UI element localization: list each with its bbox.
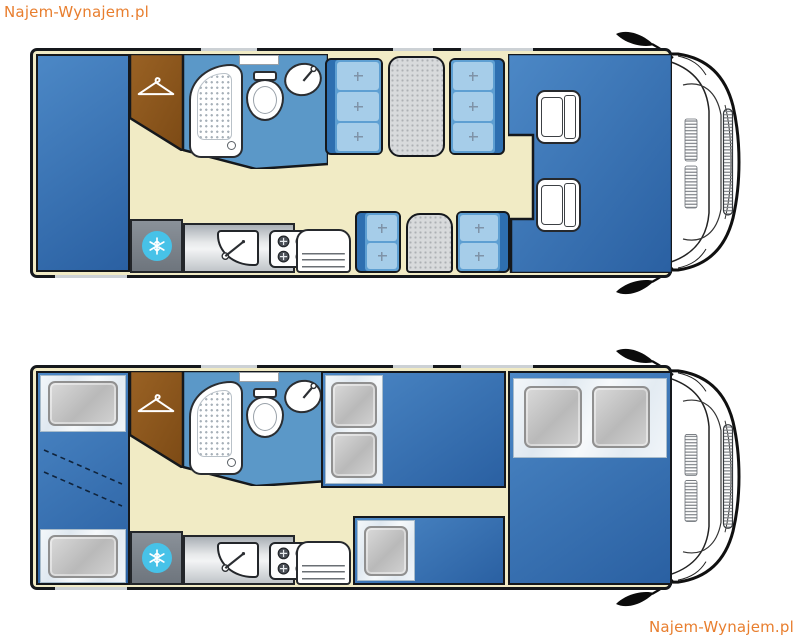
cab-nose — [666, 366, 744, 587]
cab-seat-passenger — [536, 90, 581, 144]
shower — [189, 64, 243, 158]
side-dinette-table — [406, 213, 453, 273]
roof-window-segment — [55, 587, 127, 590]
bumper-grille-icon — [724, 425, 733, 529]
wardrobe — [130, 371, 183, 468]
page: Najem-Wynajem.pl Najem-Wynajem.pl — [0, 0, 800, 644]
shower-tray — [197, 73, 232, 140]
rear-double-bed — [36, 54, 130, 272]
grille-vent-icon — [685, 166, 697, 208]
rear-bunk-beds — [36, 371, 130, 585]
bunk-ladder-marks — [40, 434, 126, 529]
cab-nose-icon — [666, 366, 744, 587]
bunk-bed-top — [40, 375, 126, 432]
cab-seat-driver — [536, 178, 581, 232]
pillow — [331, 382, 377, 428]
kitchen-sink — [217, 230, 259, 266]
roof-window-segment — [55, 275, 127, 278]
grille-vent-icon — [685, 119, 697, 161]
bunk-bed-bottom — [40, 529, 126, 583]
bed-sheet — [325, 375, 383, 484]
pillow — [524, 386, 582, 448]
kitchen-counter — [183, 535, 295, 585]
roof-window-segment — [461, 365, 533, 368]
bunk-pillow — [48, 381, 118, 426]
front-lounge-block — [508, 54, 672, 273]
hanger-icon — [136, 70, 176, 100]
pillow — [592, 386, 650, 448]
toilet-bowl — [246, 396, 284, 438]
bench-seat — [296, 541, 351, 585]
bench-seat — [296, 229, 351, 273]
bathroom-shelf — [239, 55, 279, 65]
motorhome-body — [30, 48, 672, 278]
floorplan-night — [30, 365, 744, 590]
roof-window-segment — [201, 365, 257, 368]
side-single-bed — [353, 516, 505, 585]
pillow — [331, 432, 377, 478]
bathroom — [183, 54, 328, 169]
snowflake-icon — [142, 231, 172, 261]
kitchen-counter — [183, 223, 295, 273]
toilet — [246, 71, 284, 121]
dinette-double-bed — [321, 371, 506, 488]
kitchen-sink — [217, 542, 259, 578]
snowflake-icon — [142, 543, 172, 573]
grille-vent-icon — [685, 480, 697, 521]
bunk-pillow — [48, 535, 118, 578]
bumper-grille-icon — [724, 109, 733, 215]
roof-window-segment — [393, 365, 433, 368]
brand-watermark-bottom: Najem-Wynajem.pl — [649, 618, 794, 636]
side-dinette-bench — [456, 211, 510, 273]
roof-window-segment — [393, 48, 433, 51]
side-dinette-bench — [355, 211, 401, 273]
shower — [189, 381, 243, 475]
fridge — [130, 219, 183, 273]
dinette-table — [388, 56, 445, 157]
drop-down-front-bed — [508, 371, 672, 585]
shower-drain-icon — [227, 141, 236, 150]
bed-sheet — [357, 520, 415, 581]
wardrobe — [130, 54, 183, 151]
bathroom — [183, 371, 328, 486]
roof-window-segment — [201, 48, 257, 51]
hanger-icon — [136, 387, 176, 417]
dinette-bench — [325, 58, 383, 155]
fridge — [130, 531, 183, 585]
dinette-bench — [449, 58, 505, 155]
bathroom-shelf — [239, 372, 279, 382]
toilet-bowl — [246, 79, 284, 121]
brand-watermark-top: Najem-Wynajem.pl — [4, 3, 149, 21]
cab-nose — [666, 49, 744, 275]
grille-vent-icon — [685, 434, 697, 475]
shower-tray — [197, 390, 232, 457]
roof-window-segment — [461, 48, 533, 51]
floorplan-day — [30, 48, 744, 278]
pillow — [364, 526, 408, 576]
cab-nose-icon — [666, 49, 744, 275]
toilet — [246, 388, 284, 438]
motorhome-body — [30, 365, 672, 590]
shower-drain-icon — [227, 458, 236, 467]
bed-sheet — [513, 378, 667, 458]
